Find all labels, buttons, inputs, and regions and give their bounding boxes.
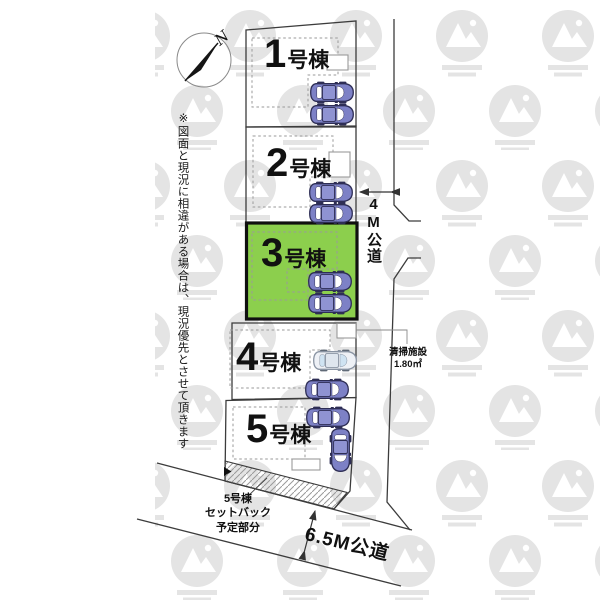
lot-1-number: 1 xyxy=(264,32,285,76)
car-icon xyxy=(311,82,354,104)
car-icon-white xyxy=(314,350,357,372)
setback-line3: 予定部分 xyxy=(200,521,276,535)
lot-1-label: 1号棟 xyxy=(264,34,329,74)
setback-line2: セットバック xyxy=(200,506,276,520)
lot-4-number: 4 xyxy=(236,335,257,379)
cleaning-facility-size: 1.80㎡ xyxy=(385,359,431,371)
lot-4-label: 4号棟 xyxy=(236,337,301,377)
car-icon xyxy=(310,203,353,225)
car-icon xyxy=(309,293,352,315)
lot-5-suffix: 号棟 xyxy=(269,424,311,447)
car-icon xyxy=(311,104,354,126)
lot-5-number: 5 xyxy=(246,407,267,451)
car-icon xyxy=(309,271,352,293)
disclaimer-note: ※図面と現況に相違がある場合は、現況優先とさせて頂きます xyxy=(176,111,188,450)
car-icon-vertical xyxy=(330,429,352,472)
lot-3-suffix: 号棟 xyxy=(284,248,326,271)
lot-3-number: 3 xyxy=(261,231,282,275)
car-icon xyxy=(306,379,349,401)
lot-2-label: 2号棟 xyxy=(266,143,331,183)
site-plan-image: N ※図面と現況に相違がある場合は、現況優先とさせて頂きます 1号棟 2号棟 3… xyxy=(0,0,600,600)
lot-2-number: 2 xyxy=(266,141,287,185)
lot-3-label: 3号棟 xyxy=(261,233,326,273)
site-plan-drawing: N xyxy=(0,0,600,600)
lot-5-label: 5号棟 xyxy=(246,409,311,449)
lot-2-suffix: 号棟 xyxy=(289,158,331,181)
porch-lot1 xyxy=(327,55,348,70)
setback-line1: 5号棟 xyxy=(200,492,276,506)
cleaning-facility-box xyxy=(337,324,356,339)
porch-lot5 xyxy=(292,459,320,470)
cleaning-facility-name: 清掃施設 xyxy=(385,347,431,359)
cleaning-facility-label: 清掃施設 1.80㎡ xyxy=(385,347,431,371)
lot-4-suffix: 号棟 xyxy=(259,352,301,375)
lot-1-suffix: 号棟 xyxy=(287,49,329,72)
car-icon xyxy=(307,407,350,429)
porch-lot2 xyxy=(329,152,350,177)
car-icon xyxy=(310,182,353,204)
setback-label: 5号棟 セットバック 予定部分 xyxy=(200,492,276,535)
road-4m-label: 4M公道 xyxy=(366,196,381,264)
